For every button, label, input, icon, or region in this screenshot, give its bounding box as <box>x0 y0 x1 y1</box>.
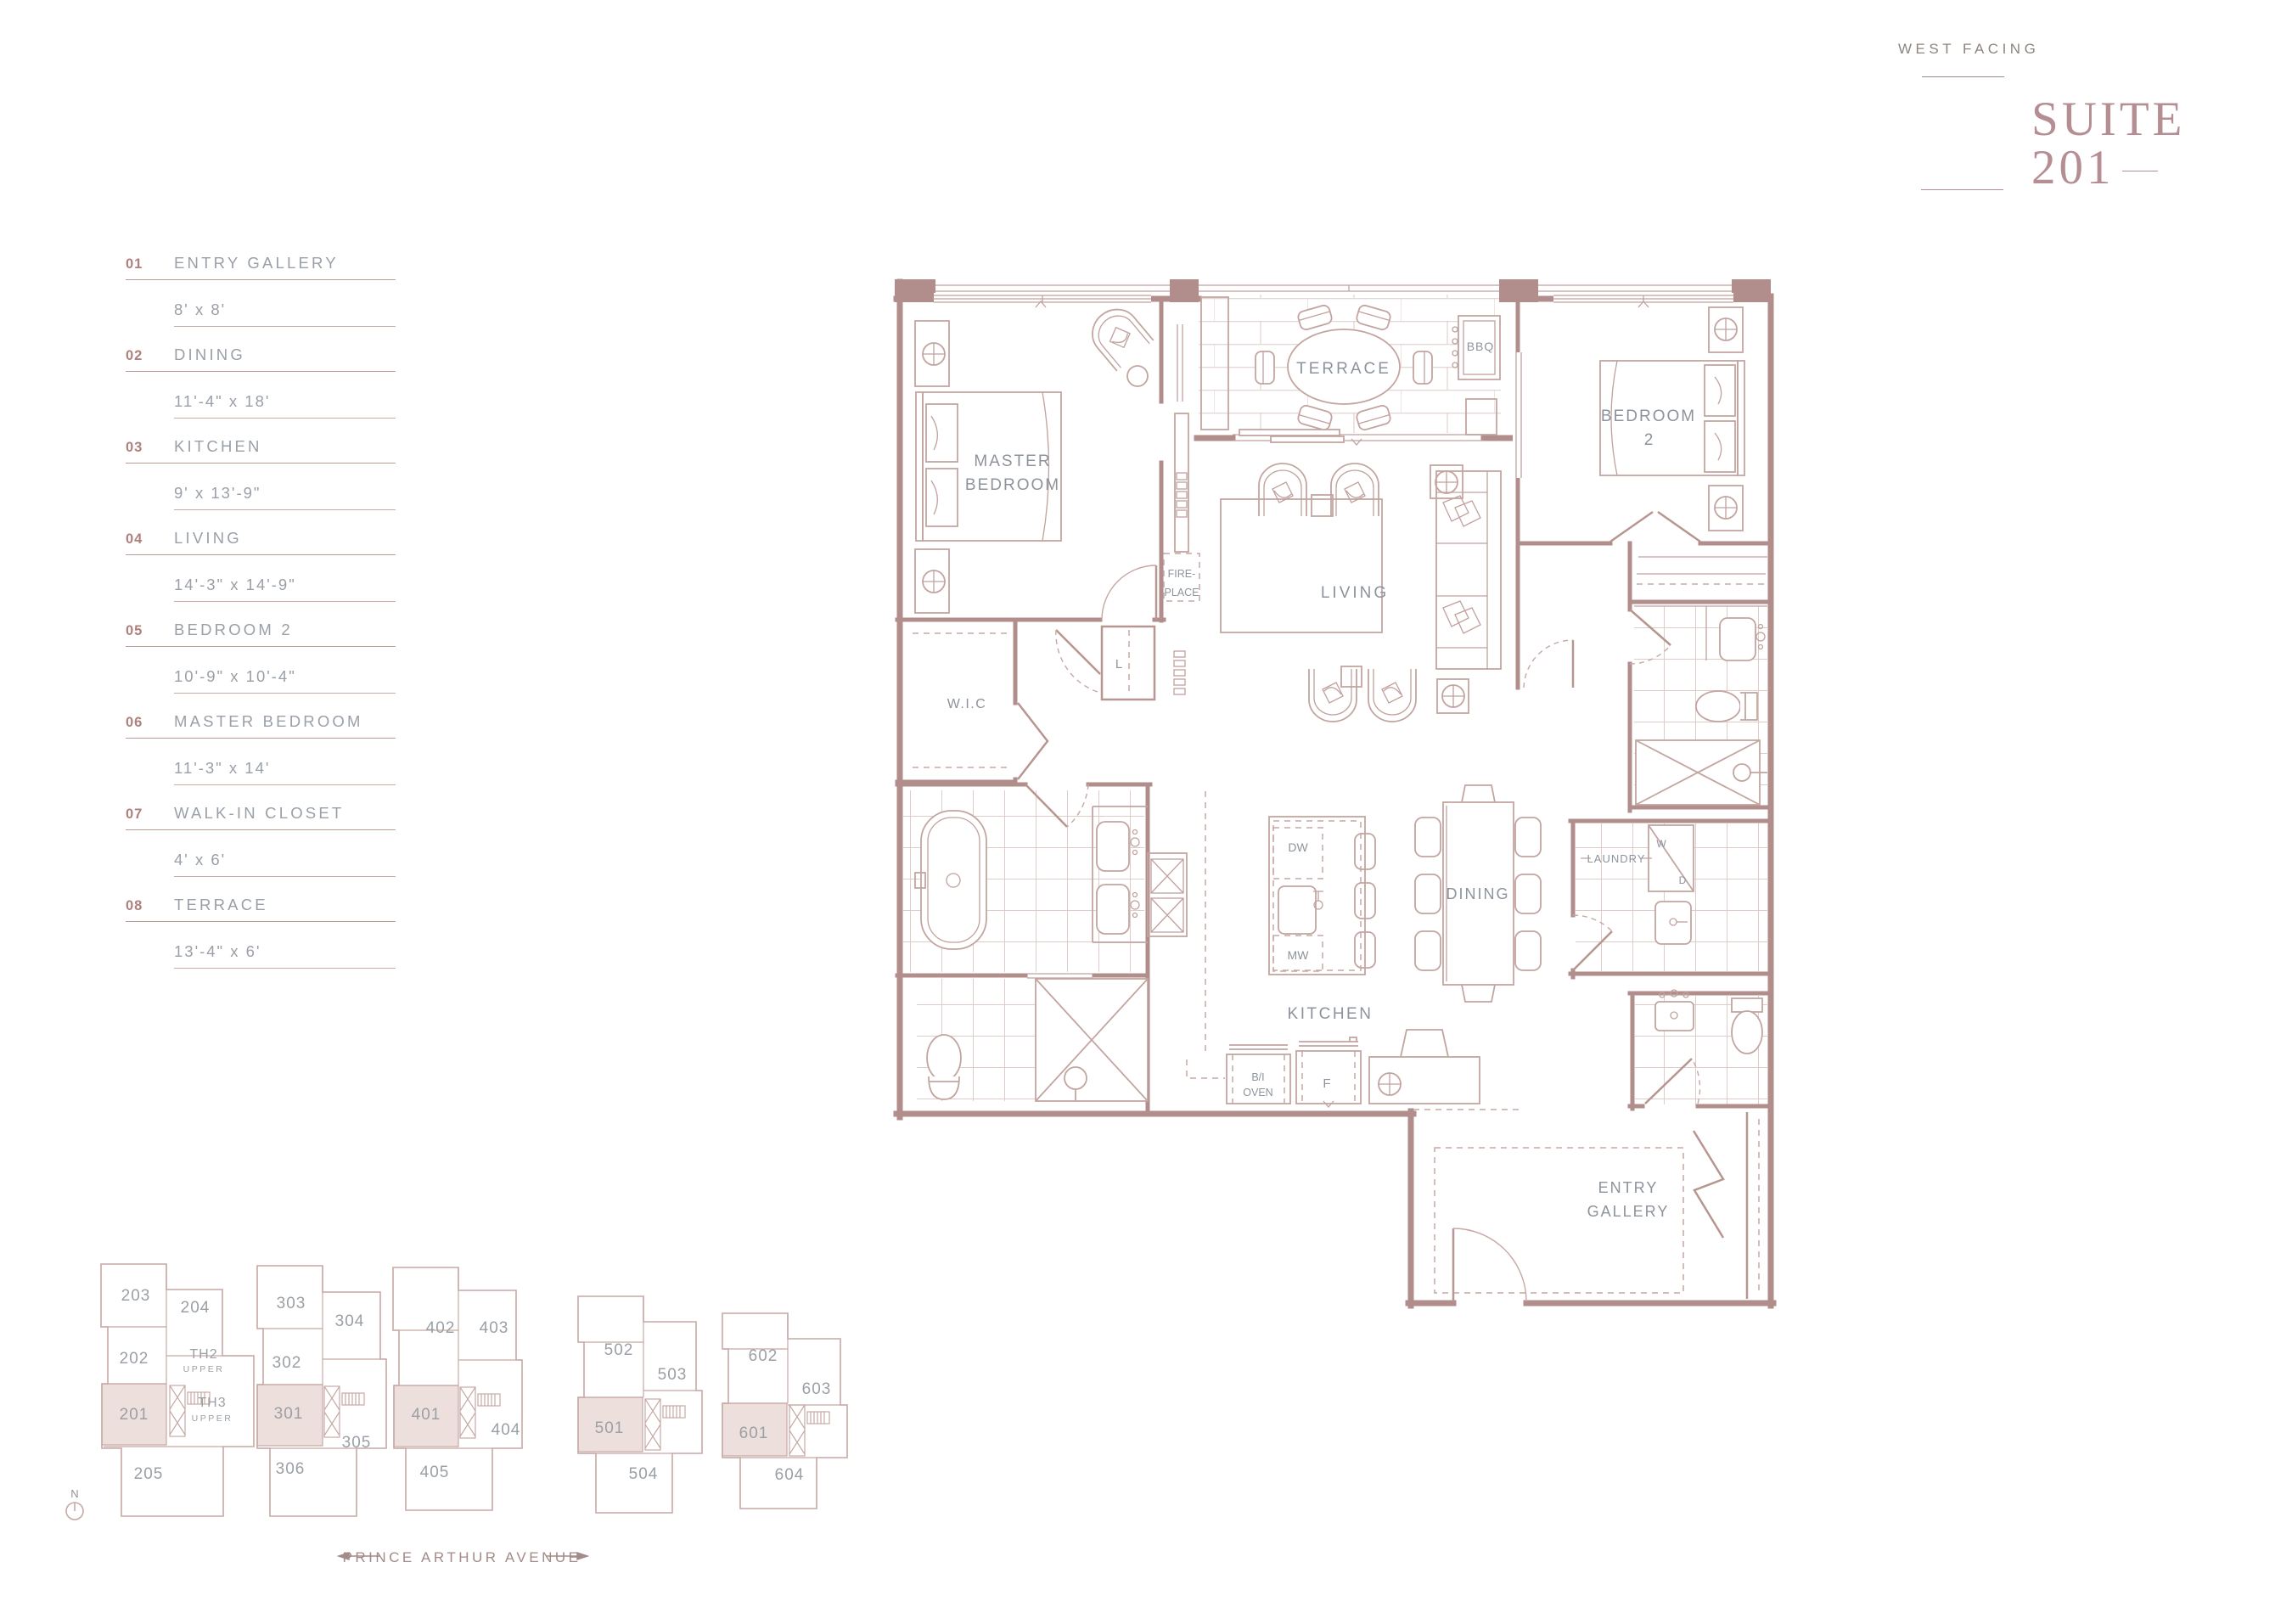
fridge <box>1296 1037 1361 1104</box>
svg-text:405: 405 <box>420 1464 450 1481</box>
street-label: PRINCE ARTHUR AVENUE <box>339 1549 587 1565</box>
label-dryer: D <box>1679 874 1687 886</box>
svg-text:PRINCE ARTHUR AVENUE: PRINCE ARTHUR AVENUE <box>343 1549 581 1565</box>
bathtub <box>915 811 986 949</box>
svg-text:2: 2 <box>1644 431 1654 449</box>
svg-text:302: 302 <box>272 1354 302 1372</box>
svg-text:305: 305 <box>342 1434 372 1452</box>
window-bedroom2-terrace <box>1513 352 1523 478</box>
powder-toilet <box>1732 998 1762 1054</box>
shower-wc <box>1036 979 1148 1101</box>
label-oven: B/I <box>1251 1071 1264 1083</box>
svg-text:602: 602 <box>749 1347 778 1365</box>
label-bedroom-2: BEDROOM <box>1601 407 1696 425</box>
label-washer: W <box>1656 838 1666 850</box>
svg-text:202: 202 <box>120 1350 149 1368</box>
svg-text:205: 205 <box>134 1465 164 1483</box>
window-band-bedroom2 <box>1553 293 1733 305</box>
laundry-sink <box>1655 902 1691 944</box>
svg-text:403: 403 <box>480 1319 509 1337</box>
keyplan-floor-6: 602 603 601 604 <box>722 1313 847 1509</box>
cooktop-wall <box>1148 853 1187 936</box>
label-entry: ENTRY <box>1598 1179 1659 1196</box>
linen-closet <box>1102 627 1154 700</box>
svg-text:404: 404 <box>492 1421 521 1439</box>
shelving <box>1174 651 1185 694</box>
keyplan-floor-3: 303 304 302 301 305 306 <box>257 1266 386 1516</box>
svg-text:402: 402 <box>426 1319 456 1337</box>
label-fridge: F <box>1323 1076 1330 1091</box>
side-table <box>1127 366 1148 386</box>
sofa <box>1436 471 1501 669</box>
svg-text:OVEN: OVEN <box>1243 1087 1272 1099</box>
svg-text:PLACE: PLACE <box>1165 587 1199 598</box>
living-room <box>1221 464 1573 722</box>
label-fireplace: FIRE- <box>1168 568 1196 580</box>
svg-text:GALLERY: GALLERY <box>1587 1203 1670 1220</box>
unit-401: 401 <box>412 1406 441 1424</box>
label-bbq: BBQ <box>1467 340 1495 353</box>
powder-sink <box>1655 1002 1694 1031</box>
north-arrow-icon: N <box>66 1487 83 1520</box>
unit-201: 201 <box>120 1406 149 1424</box>
svg-text:304: 304 <box>335 1312 365 1330</box>
svg-text:UPPER: UPPER <box>183 1364 225 1374</box>
toilet-wc <box>927 1035 961 1099</box>
keyplan-floor-2: 203 204 202 TH2 UPPER 201 TH3 UPPER 205 <box>101 1264 254 1516</box>
svg-text:BEDROOM: BEDROOM <box>965 476 1060 494</box>
svg-text:503: 503 <box>658 1366 688 1384</box>
keyplan-floor-5: 502 503 501 504 <box>578 1296 702 1513</box>
label-living: LIVING <box>1321 584 1389 602</box>
label-dining: DINING <box>1447 885 1510 902</box>
label-master-bedroom: MASTER <box>974 452 1051 470</box>
washer-dryer <box>1649 825 1694 891</box>
unit-501: 501 <box>595 1419 625 1437</box>
entry-door-arc <box>1453 1228 1526 1301</box>
keyplan-floor-4: 402 403 401 404 405 <box>393 1267 522 1510</box>
unit-301: 301 <box>274 1405 304 1423</box>
svg-text:UPPER: UPPER <box>192 1413 233 1424</box>
svg-text:203: 203 <box>121 1287 151 1305</box>
entry-closet-bifold <box>1694 1131 1723 1238</box>
svg-text:204: 204 <box>181 1299 211 1317</box>
range <box>1369 1030 1480 1104</box>
svg-text:604: 604 <box>775 1466 805 1484</box>
keyplans: 203 204 202 TH2 UPPER 201 TH3 UPPER 205 … <box>66 1264 847 1565</box>
label-linen: L <box>1115 657 1122 672</box>
label-laundry: LAUNDRY <box>1587 852 1646 865</box>
window-master-terrace <box>1174 324 1184 402</box>
svg-text:TH2: TH2 <box>189 1347 217 1362</box>
floorplan-sheet: WEST FACING SUITE 201 01ENTRY GALLERY 8'… <box>0 0 2292 1624</box>
label-kitchen: KITCHEN <box>1288 1005 1374 1023</box>
area-rug <box>1221 499 1382 632</box>
svg-text:603: 603 <box>802 1380 832 1398</box>
label-wic: W.I.C <box>947 697 987 711</box>
label-mw: MW <box>1288 948 1310 962</box>
floor-plan-svg: MASTER BEDROOM TERRACE BBQ BEDROOM 2 FIR… <box>0 0 2292 1624</box>
entry-outline <box>1435 1148 1683 1293</box>
kitchen-island <box>1269 817 1375 975</box>
svg-text:502: 502 <box>604 1341 634 1359</box>
svg-text:TH3: TH3 <box>198 1396 226 1410</box>
svg-text:303: 303 <box>277 1295 306 1312</box>
north-label: N <box>70 1487 78 1500</box>
toilet-2 <box>1696 691 1757 722</box>
unit-601: 601 <box>739 1425 769 1442</box>
label-terrace: TERRACE <box>1296 360 1391 378</box>
svg-text:306: 306 <box>276 1460 306 1478</box>
label-dw: DW <box>1288 840 1308 854</box>
shower-2 <box>1636 740 1767 805</box>
svg-text:504: 504 <box>629 1465 659 1483</box>
